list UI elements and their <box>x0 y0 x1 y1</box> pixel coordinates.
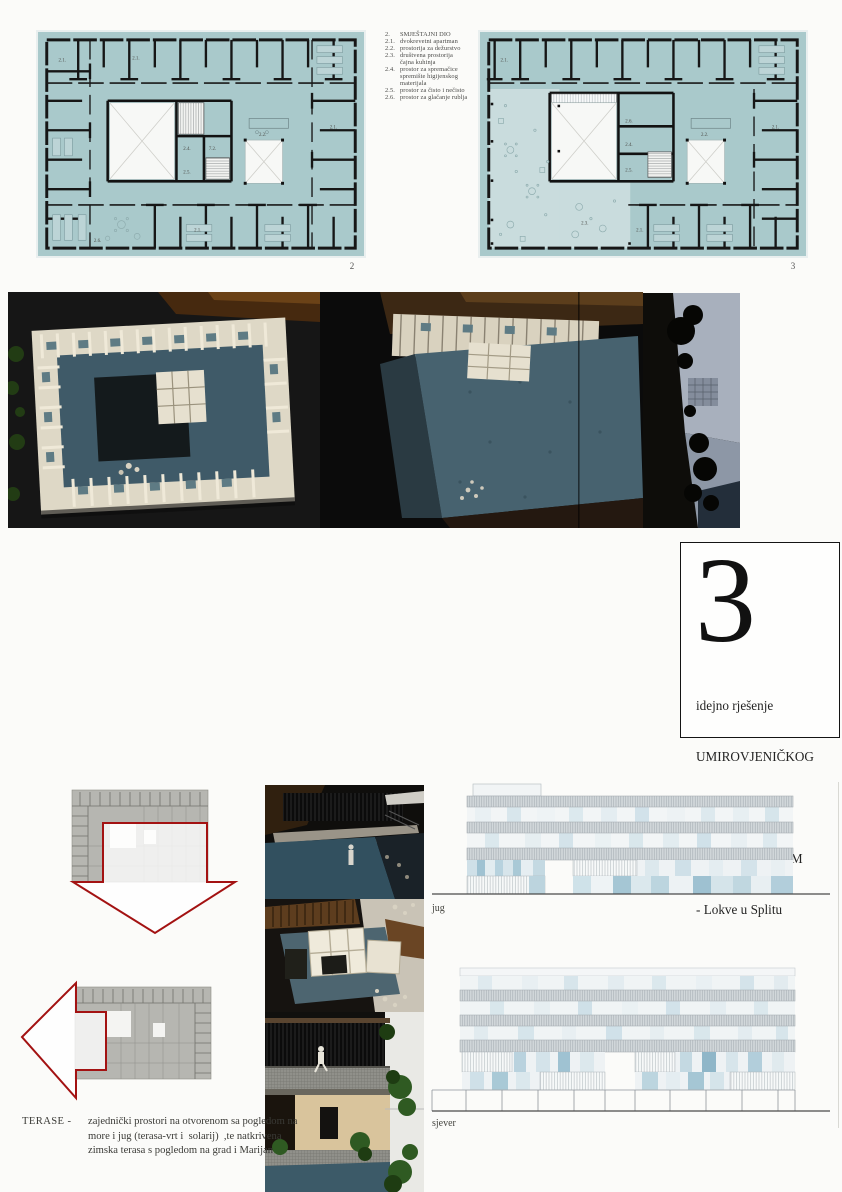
room-label: 2.2. <box>701 133 708 138</box>
room-label: 2.4. <box>183 147 190 152</box>
legend-row: spremište higijenskog materijala <box>385 73 485 87</box>
room-label: 2.5. <box>183 170 190 175</box>
room-label: 2.1. <box>501 58 508 63</box>
legend-row: čajna kuhinja <box>385 59 485 66</box>
room-label: 2.4. <box>625 143 632 148</box>
floor-plan-level3-drawing: 2.1. 2.6. 2.4. 2.5. 2.2. 2.1. 2.3. 2.1. <box>480 32 806 256</box>
model-photo-aerial-2 <box>320 292 643 528</box>
room-label: 2.1. <box>330 125 337 130</box>
legend-row: 2.1.dvokrevetni apartman <box>385 38 485 45</box>
model-photo-partitions-top <box>265 899 424 1012</box>
room-label: 2.5. <box>625 169 632 174</box>
room-label: 2.1. <box>132 57 139 62</box>
presentation-board: 2.1. 2.1. 2.4. 7.2. 2.5. 2.2. 2.1. 2.1. … <box>0 0 842 1192</box>
legend-row: 2.4.prostor za spremačice <box>385 66 485 73</box>
plan-legend: 2.SMJEŠTAJNI DIO 2.1.dvokrevetni apartma… <box>385 31 485 101</box>
room-label: 7.2. <box>209 147 216 152</box>
panel-number: 3 <box>681 543 839 657</box>
elevation-south-label: jug <box>432 903 445 914</box>
diagram-terrace-south <box>58 786 248 942</box>
diagram-terrace-west <box>12 965 237 1115</box>
legend-row: 2.6.prostor za glačanje rublja <box>385 94 485 101</box>
room-label: 2.1. <box>636 228 643 233</box>
legend-row: 2.2.prostorija za dežurstvo <box>385 45 485 52</box>
room-label: 2.1. <box>194 228 201 233</box>
legend-row: 2.3.društvena prostorija <box>385 52 485 59</box>
room-label: 2.3. <box>581 222 588 227</box>
right-margin-rule <box>838 782 839 1128</box>
legend-row: 2.SMJEŠTAJNI DIO <box>385 31 485 38</box>
model-photo-detail <box>643 293 740 528</box>
plan-3-page-number: 3 <box>785 261 801 271</box>
title-block: 3 idejno rješenje UMIROVJENIČKOG DOMA S … <box>680 542 840 738</box>
title-line-2: UMIROVJENIČKOG <box>696 748 833 765</box>
title-line-1: idejno rješenje <box>696 697 833 714</box>
terase-note: TERASE - zajednički prostori na otvoreno… <box>22 1115 282 1159</box>
model-photo-aerial-1 <box>8 292 320 528</box>
terase-label: TERASE - <box>22 1115 88 1159</box>
room-label: 2.1. <box>772 125 779 130</box>
room-label: 2.6. <box>94 239 101 244</box>
elevation-north <box>430 966 838 1116</box>
model-photo-terrace-interior <box>265 785 424 899</box>
elevation-south <box>430 782 838 904</box>
plan-2-page-number: 2 <box>344 261 360 271</box>
model-photo-facade <box>265 1012 424 1192</box>
legend-row: 2.5.prostor za čisto i nečisto <box>385 87 485 94</box>
floor-plan-level2-drawing: 2.1. 2.1. 2.4. 7.2. 2.5. 2.2. 2.1. 2.1. … <box>38 32 364 256</box>
room-label: 2.2. <box>259 133 266 138</box>
terase-text: zajednički prostori na otvorenom sa pogl… <box>88 1115 297 1159</box>
room-label: 2.6. <box>625 119 632 124</box>
room-label: 2.1. <box>59 58 66 63</box>
elevation-north-label: sjever <box>432 1118 456 1129</box>
floor-plan-level3: 2.1. 2.6. 2.4. 2.5. 2.2. 2.1. 2.3. 2.1. <box>478 30 808 258</box>
floor-plan-level2: 2.1. 2.1. 2.4. 7.2. 2.5. 2.2. 2.1. 2.1. … <box>36 30 366 258</box>
